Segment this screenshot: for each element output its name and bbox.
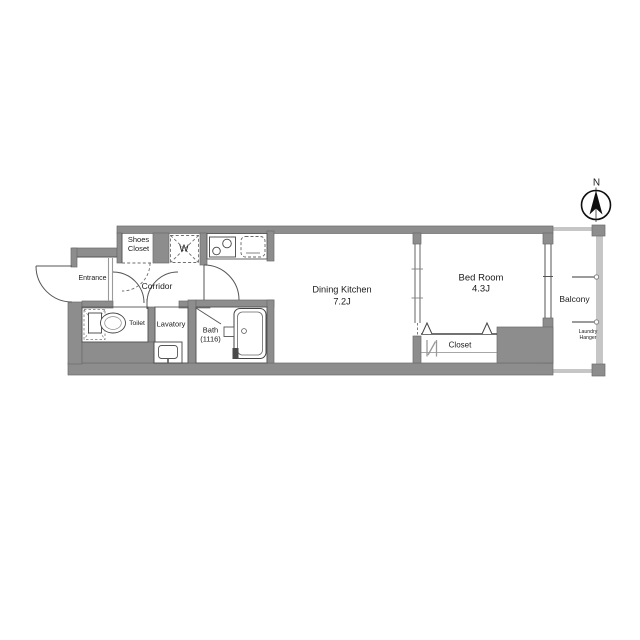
entrance-label: Entrance xyxy=(78,274,106,282)
wall-entrance-top xyxy=(72,248,117,257)
bath-door xyxy=(196,308,221,324)
dk-door xyxy=(204,265,239,300)
wall-bottom xyxy=(68,363,553,375)
wall-bath-right xyxy=(267,300,274,363)
compass-icon xyxy=(582,188,611,223)
wall-bath-top xyxy=(196,300,274,307)
laundry-hanger-label: Laundry Hanger xyxy=(579,328,598,340)
balcony-corner-top xyxy=(592,225,605,236)
corridor-label: Corridor xyxy=(142,282,173,292)
bedroom-label: Bed Room 4.3J xyxy=(459,272,504,295)
wall-left-bottom-block xyxy=(68,302,82,364)
floor-plan-drawing xyxy=(0,0,640,640)
wall-divider-bottom-stub xyxy=(413,336,421,363)
shoes-closet-label: Shoes Closet xyxy=(128,235,149,253)
wall-divider-top-stub xyxy=(413,233,421,244)
wall-counter-right-stub xyxy=(267,231,274,261)
wall-top xyxy=(117,226,553,234)
toilet-door xyxy=(113,272,144,303)
toilet-tank xyxy=(89,313,102,333)
wall-washer-right xyxy=(200,233,207,265)
bathtub xyxy=(233,309,267,360)
wall-shoes-closet-left xyxy=(117,233,122,263)
toilet-bowl xyxy=(101,313,126,333)
shower-unit xyxy=(233,348,239,359)
closet-door-pivot xyxy=(482,323,492,334)
toilet-fixture xyxy=(84,310,126,340)
sliding-door-mark xyxy=(427,340,437,357)
floor-plan-page: N Entrance Shoes Closet Corridor W Toile… xyxy=(0,0,640,640)
compass-north-label: N xyxy=(593,177,600,189)
washing-machine-label: W xyxy=(179,243,188,255)
dining-kitchen-label: Dining Kitchen 7.2J xyxy=(312,285,371,308)
closet-label: Closet xyxy=(449,340,472,349)
wall-entrance-left xyxy=(71,248,77,267)
entrance-step xyxy=(109,258,113,301)
entrance-door-arc xyxy=(36,266,72,302)
lavatory-label: Lavatory xyxy=(157,321,186,330)
bath-counter xyxy=(224,327,234,337)
wall-lavatory-bath xyxy=(188,300,196,363)
sliding-partition xyxy=(412,244,424,337)
balcony-label: Balcony xyxy=(559,295,589,305)
wall-toilet-lavatory xyxy=(148,307,155,342)
wall-toilet-bottom-block xyxy=(82,342,155,363)
balcony-window xyxy=(543,244,553,318)
bath-label: Bath (1116) xyxy=(200,326,221,343)
wall-window-top-stub xyxy=(543,233,553,244)
balcony-corner-bottom xyxy=(592,364,605,376)
wall-closet-right-block xyxy=(497,327,553,363)
kitchen-counter xyxy=(207,234,267,260)
toilet-label: Toilet xyxy=(129,320,145,328)
wall-between-closet-washer xyxy=(153,233,169,263)
washbasin xyxy=(154,342,182,363)
closet-door-pivot xyxy=(422,323,432,334)
